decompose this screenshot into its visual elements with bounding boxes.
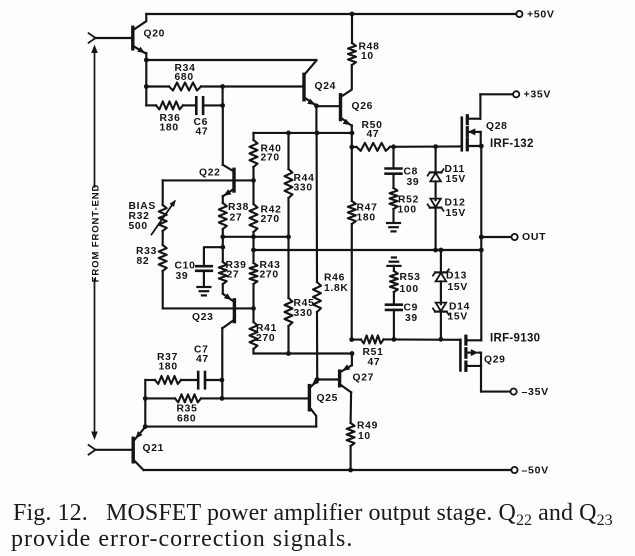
svg-text:Q29: Q29 xyxy=(484,355,506,366)
svg-text:680: 680 xyxy=(177,413,196,424)
svg-text:FROM FRONT-END: FROM FRONT-END xyxy=(91,184,102,283)
svg-text:47: 47 xyxy=(367,129,380,140)
svg-text:Q23: Q23 xyxy=(192,312,214,323)
svg-text:R53: R53 xyxy=(400,272,421,283)
svg-text:15V: 15V xyxy=(448,282,468,293)
svg-text:IRF-132: IRF-132 xyxy=(490,138,534,150)
svg-text:27: 27 xyxy=(227,270,240,281)
svg-text:Q21: Q21 xyxy=(143,443,165,454)
svg-text:39: 39 xyxy=(407,177,420,188)
svg-text:Q24: Q24 xyxy=(315,81,337,92)
svg-text:Q22: Q22 xyxy=(199,168,221,179)
svg-text:C8: C8 xyxy=(404,167,419,178)
svg-text:–35V: –35V xyxy=(522,386,549,398)
svg-text:Q20: Q20 xyxy=(144,29,166,40)
svg-text:Q26: Q26 xyxy=(352,101,374,112)
svg-text:330: 330 xyxy=(294,308,313,319)
svg-text:15V: 15V xyxy=(448,311,468,322)
svg-text:27: 27 xyxy=(230,213,243,224)
svg-text:82: 82 xyxy=(137,256,150,267)
svg-text:680: 680 xyxy=(175,72,194,83)
svg-text:47: 47 xyxy=(196,354,209,365)
svg-text:330: 330 xyxy=(294,183,313,194)
svg-text:+50V: +50V xyxy=(527,9,555,21)
svg-text:180: 180 xyxy=(159,362,178,373)
svg-text:–50V: –50V xyxy=(522,464,549,476)
svg-text:1.8K: 1.8K xyxy=(324,283,349,294)
svg-text:10: 10 xyxy=(358,431,371,442)
svg-text:D13: D13 xyxy=(446,271,467,282)
svg-text:R49: R49 xyxy=(357,421,378,432)
svg-text:180: 180 xyxy=(357,213,376,224)
svg-text:15V: 15V xyxy=(446,208,466,219)
svg-text:270: 270 xyxy=(256,333,275,344)
svg-text:270: 270 xyxy=(260,270,279,281)
svg-text:10: 10 xyxy=(361,51,374,62)
svg-text:+35V: +35V xyxy=(524,89,552,101)
svg-text:500: 500 xyxy=(129,221,148,232)
svg-text:39: 39 xyxy=(176,271,189,282)
svg-text:OUT: OUT xyxy=(522,231,546,243)
svg-text:D12: D12 xyxy=(445,198,466,209)
svg-text:Q27: Q27 xyxy=(353,373,375,384)
svg-text:R46: R46 xyxy=(324,273,345,284)
svg-text:100: 100 xyxy=(400,284,419,295)
svg-text:100: 100 xyxy=(398,205,417,216)
svg-text:180: 180 xyxy=(160,123,179,134)
svg-text:15V: 15V xyxy=(446,174,466,185)
svg-text:IRF-9130: IRF-9130 xyxy=(490,332,540,344)
svg-text:270: 270 xyxy=(261,153,280,164)
svg-text:Q25: Q25 xyxy=(317,393,339,404)
svg-text:47: 47 xyxy=(368,357,381,368)
svg-text:270: 270 xyxy=(261,214,280,225)
svg-text:39: 39 xyxy=(405,313,418,324)
svg-text:Q28: Q28 xyxy=(486,121,508,132)
svg-text:47: 47 xyxy=(196,127,209,138)
